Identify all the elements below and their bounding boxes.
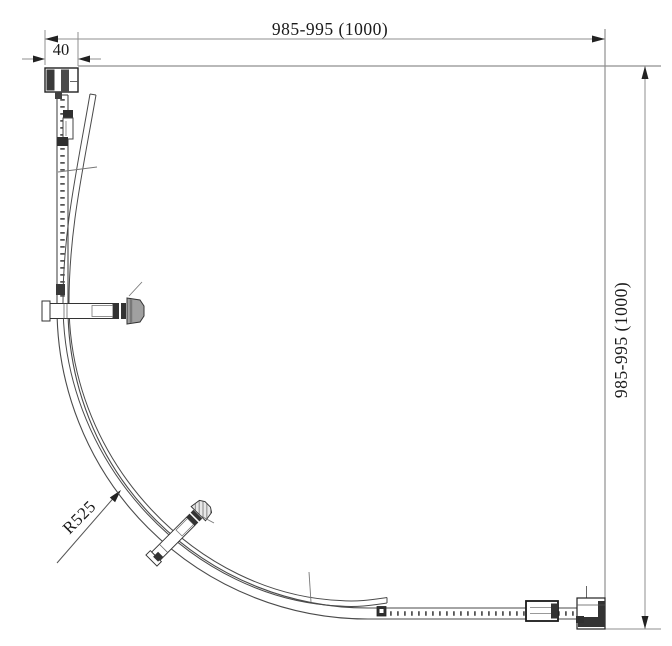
clamp-body (63, 118, 73, 139)
sliding-door-band (63, 94, 387, 607)
arrow-right-icon (592, 36, 605, 43)
profile-dark-bar-2 (61, 70, 69, 93)
profile-width-dimension: 40 (22, 32, 101, 66)
top-left-wall-profile (45, 68, 78, 99)
door-inner-edge (69, 95, 387, 601)
bottom-rail-end-cap (377, 607, 386, 617)
end-cap-slot (380, 609, 384, 613)
clamp-dark-foot (57, 137, 68, 146)
arrow-up-icon (642, 66, 649, 79)
radius-dimension: R525 (57, 490, 121, 563)
right-height-dimension: 985-995 (1000) (599, 66, 661, 629)
door-outer-edge (63, 94, 387, 607)
profile-slot (578, 607, 598, 617)
rail-end-block (55, 92, 62, 99)
clamp-dark-nub (551, 604, 557, 619)
radius-label: R525 (59, 497, 100, 538)
curved-track-rim (57, 95, 600, 619)
glass-clamp-bottom (526, 601, 558, 621)
track-inner-edge (68, 95, 600, 608)
bracket-end-cap (42, 301, 50, 321)
glass-clamp-top (57, 110, 73, 146)
profile-width-label: 40 (53, 40, 70, 59)
right-height-label: 985-995 (1000) (611, 282, 631, 398)
door-top-cap (90, 94, 96, 95)
track-outer-edge (57, 95, 600, 619)
shower-enclosure-plan-drawing: 985-995 (1000) 40 985-995 (1000) R525 (0, 0, 672, 646)
fixing-block (113, 303, 119, 319)
clamp-dark-head (63, 110, 73, 118)
knob-cap (127, 298, 144, 324)
profile-dark-bar (47, 70, 55, 91)
technical-drawing-page: 985-995 (1000) 40 985-995 (1000) R525 (0, 0, 672, 646)
fixing-block (121, 303, 126, 319)
knob-leader-line (129, 282, 142, 296)
bottom-right-wall-profile (576, 586, 605, 629)
top-width-label: 985-995 (1000) (272, 19, 388, 39)
arrow-right-icon (33, 56, 45, 63)
door-knob-assembly-2 (144, 497, 215, 568)
profile-dark-tab (576, 616, 584, 623)
arrow-left-icon (78, 56, 90, 63)
rail-terminal-block (56, 284, 65, 295)
arrow-down-icon (642, 616, 649, 629)
